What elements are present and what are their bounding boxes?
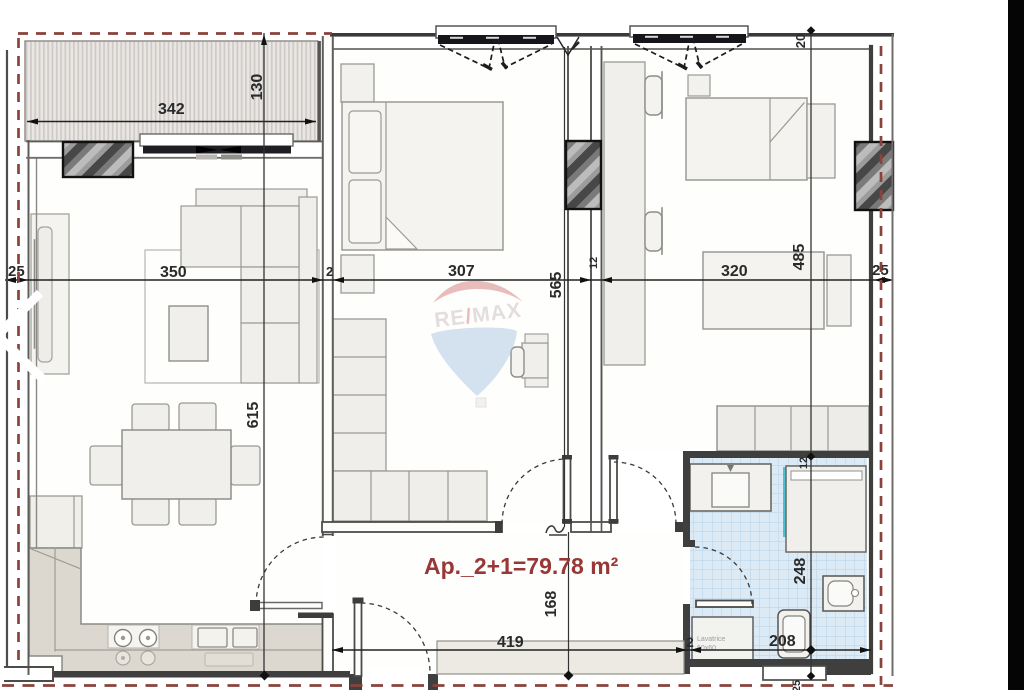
svg-text:12: 12: [588, 257, 600, 269]
svg-text:248: 248: [792, 558, 809, 585]
svg-text:320: 320: [721, 263, 748, 280]
svg-text:20: 20: [793, 34, 808, 48]
svg-text:307: 307: [448, 263, 475, 280]
svg-text:Ap._2+1=79.78 m²: Ap._2+1=79.78 m²: [424, 553, 619, 579]
svg-text:130: 130: [249, 74, 266, 101]
svg-text:350: 350: [160, 264, 187, 281]
svg-text:12: 12: [798, 457, 810, 469]
svg-text:2: 2: [686, 634, 694, 650]
svg-text:419: 419: [497, 634, 524, 651]
svg-text:342: 342: [158, 101, 185, 118]
svg-text:2: 2: [326, 264, 333, 279]
svg-text:485: 485: [791, 244, 808, 271]
svg-text:208: 208: [769, 633, 796, 650]
svg-text:565: 565: [548, 272, 565, 299]
svg-text:168: 168: [543, 591, 560, 618]
svg-text:25: 25: [8, 263, 25, 280]
svg-text:615: 615: [245, 402, 262, 429]
svg-text:Lavatrice: Lavatrice: [697, 636, 726, 643]
